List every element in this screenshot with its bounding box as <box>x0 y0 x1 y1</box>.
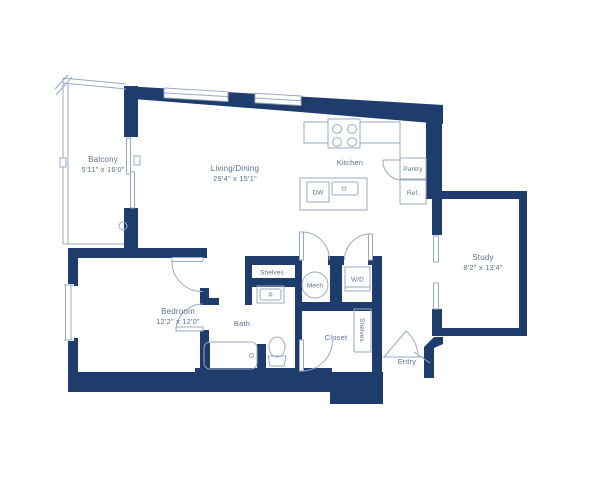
bedroom-door-leaf <box>172 258 203 262</box>
wall-bedroom-top <box>68 248 207 258</box>
mech-door-arc <box>302 232 330 260</box>
wall-entry-east <box>424 337 443 378</box>
study-slider-leaf-2 <box>434 283 439 309</box>
window-bedroom-gap <box>63 284 74 341</box>
closet-door-leaf <box>300 340 304 371</box>
balcony-rail-tick <box>60 158 66 167</box>
wall-closets-east <box>372 258 382 392</box>
toilet-bowl <box>269 337 285 357</box>
wd-door-leaf <box>369 234 373 260</box>
wall-cap-center <box>328 256 344 265</box>
wall-study-east <box>519 191 527 336</box>
wall-west-upper <box>124 86 138 137</box>
label-mech: Mech <box>307 283 324 290</box>
island-sink-faucet <box>342 187 346 191</box>
label-balcony-dims: 5'11" x 16'0" <box>81 165 124 174</box>
bathtub-faucet <box>250 354 254 358</box>
label-balcony-name: Balcony <box>88 155 118 164</box>
wall-study-bottom <box>432 328 527 336</box>
vanity-faucet <box>269 293 272 296</box>
label-living-dining-name: Living/Dining <box>211 164 259 173</box>
label-kitchen: Kitchen <box>337 158 363 167</box>
label-pantry: Pantry <box>403 166 423 173</box>
wall-bedroom-east-stub1-foot <box>209 298 219 305</box>
wall-closets-bottom-bar <box>295 302 382 311</box>
pantry-door-arc <box>383 160 401 180</box>
label-ref: Ref. <box>407 190 419 197</box>
balcony-rail-top-outer <box>63 78 126 84</box>
wall-niche-top-bar <box>245 256 302 265</box>
label-bedroom-name: Bedroom <box>161 307 195 316</box>
vanity-sink <box>260 289 281 300</box>
label-entry: Entry <box>398 357 417 366</box>
floorplan-canvas: Balcony 5'11" x 16'0" Living/Dining 29'4… <box>0 0 600 490</box>
balcony-wall-tick <box>134 156 140 165</box>
label-shelves-bath: Shelves <box>260 270 284 277</box>
wall-study-west-upper <box>432 199 442 235</box>
label-closet: Closet <box>325 333 348 342</box>
wall-bedroom-east-stub2 <box>200 330 209 344</box>
label-bath: Bath <box>234 319 250 328</box>
label-living-dining-dims: 29'4" x 15'1" <box>213 174 257 183</box>
label-wd: W/D <box>351 277 364 284</box>
kitchen-island <box>300 178 367 210</box>
closet-door-arc <box>302 340 333 371</box>
wall-kitchen-east <box>426 106 442 199</box>
label-study-dims: 8'2" x 13'4" <box>463 263 502 272</box>
wall-niche-left <box>245 256 252 305</box>
wall-study-top <box>436 191 527 199</box>
floor-plan: Balcony 5'11" x 16'0" Living/Dining 29'4… <box>0 0 600 490</box>
entry-door-leaf <box>384 331 406 357</box>
label-shelves-closet: Shelves <box>358 318 365 342</box>
island-sink <box>332 182 358 195</box>
study-slider-leaf-1 <box>434 236 439 262</box>
balcony-slider-panel-2 <box>131 172 135 208</box>
mech-door-leaf <box>300 232 304 260</box>
label-study-name: Study <box>472 253 493 262</box>
wd-door-arc <box>345 234 371 260</box>
balcony-corner-hatch-1 <box>55 75 68 89</box>
label-dw: DW <box>312 190 324 197</box>
wall-study-west-lower <box>432 309 442 336</box>
balcony-slider-panel-1 <box>127 138 131 174</box>
bedroom-door-arc <box>172 262 203 292</box>
walls-layer <box>68 86 527 404</box>
wall-tub-toilet-divider <box>257 344 266 390</box>
wall-bedroom-west-upper <box>68 250 78 286</box>
wall-bedroom-east-stub1 <box>200 288 209 305</box>
balcony-rail-top-inner <box>63 83 126 89</box>
bath-door-leaf <box>176 327 203 331</box>
label-bedroom-dims: 12'2" x 12'0" <box>156 317 200 326</box>
